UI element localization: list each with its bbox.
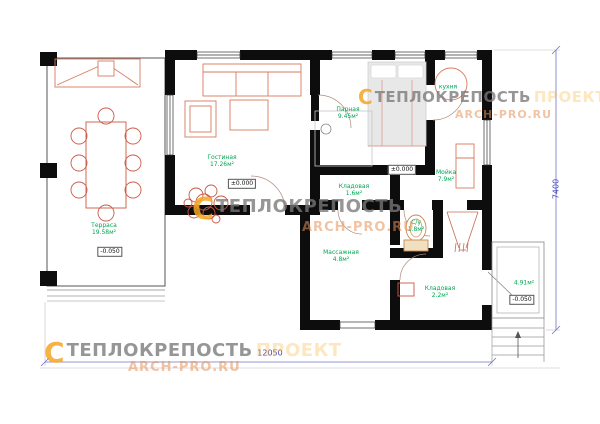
elevation-mark-porch: -0.050	[509, 295, 534, 305]
elevation-mark-terrace: -0.050	[97, 247, 122, 257]
floor-plan-drawing	[0, 0, 600, 424]
steam-room-bench	[315, 62, 426, 166]
room-label-terrace: Терраса19.58м²	[91, 222, 117, 236]
room-label-massage: Массажная4.8м²	[323, 249, 359, 263]
room-label-wc: С/у1.8м²	[408, 219, 424, 233]
elevation-mark-living: ±0.000	[228, 179, 256, 189]
terrace-sideboard	[55, 59, 140, 87]
room-label-closet-2: Кладовая2.2м²	[425, 285, 455, 299]
dimension-right: 7400	[552, 179, 561, 199]
room-label-kitchen: кухня	[439, 83, 457, 90]
room-label-wash: Мойка7.9м²	[436, 169, 456, 183]
elevation-mark-hall: ±0.000	[388, 165, 416, 175]
decorative-plant	[184, 185, 228, 223]
storage-shelf	[398, 283, 414, 296]
dimension-bottom: 12050	[257, 349, 282, 358]
room-label-steam: Парная9.45м²	[336, 106, 359, 120]
living-room-sofa-set	[185, 64, 301, 137]
room-label-living: Гостиная17.26м²	[207, 154, 236, 168]
terrace-dining-table	[71, 108, 141, 221]
floor-plan-canvas: Терраса19.58м² Гостиная17.26м² Парная9.4…	[0, 0, 600, 424]
room-label-porch-area: 4.91м²	[514, 279, 534, 286]
terrace-structure	[40, 52, 165, 301]
wash-room-cabinet	[456, 144, 474, 188]
room-label-closet-1: Кладовая1.6м²	[339, 183, 369, 197]
attic-ladder-icon	[447, 212, 478, 252]
